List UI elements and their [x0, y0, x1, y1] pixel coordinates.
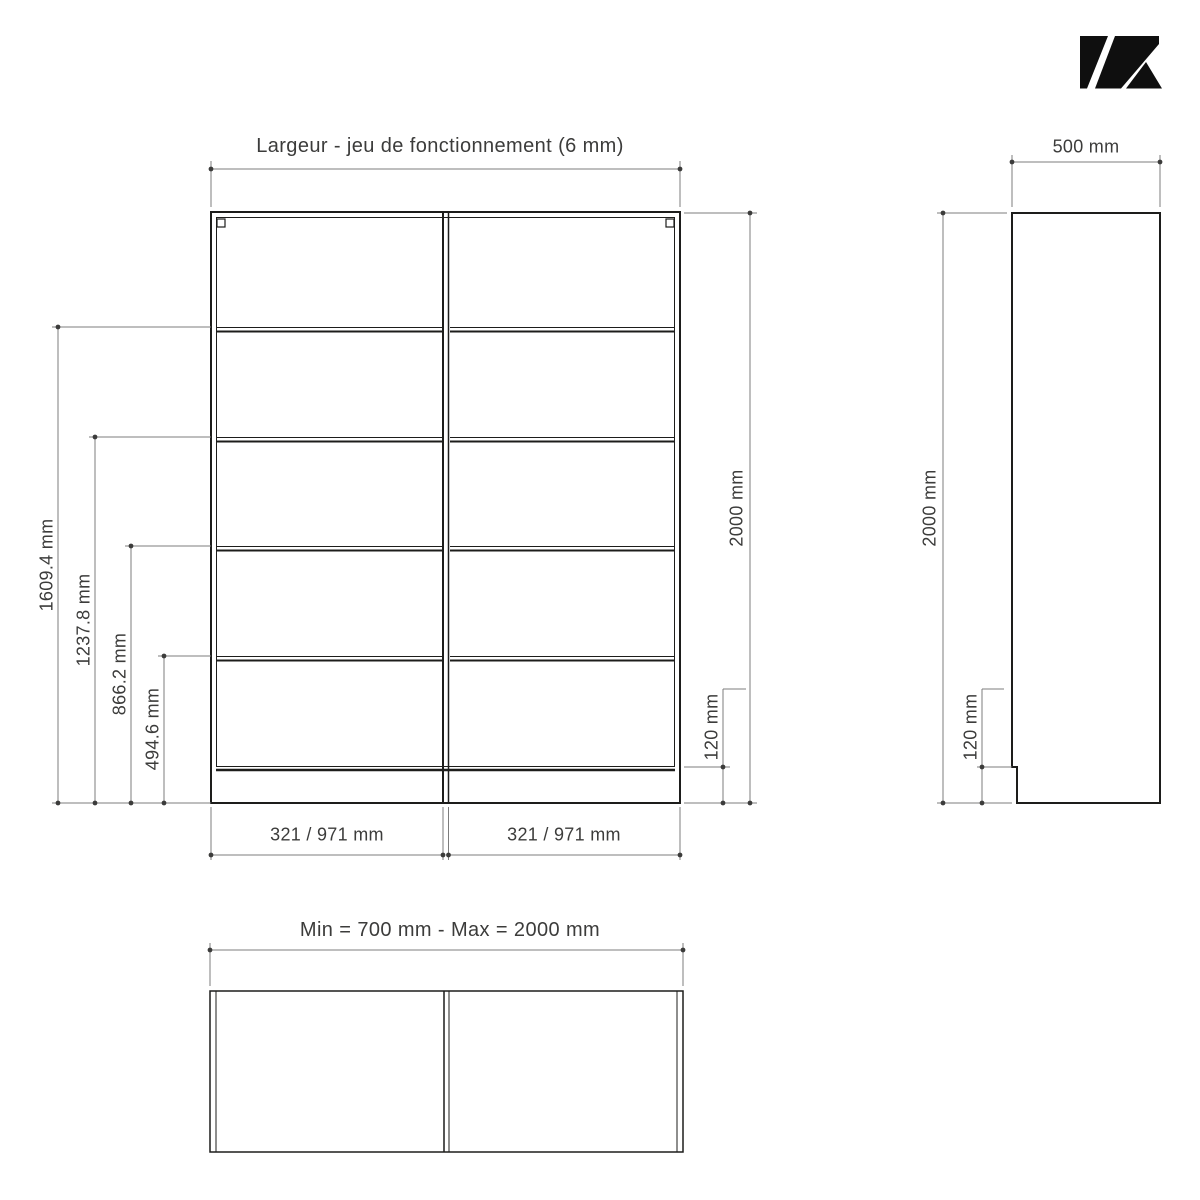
front-door-gap-detail-left [217, 219, 225, 227]
front-plinth [216, 767, 675, 771]
side-view: 500 mm 2000 mm 120 mm [919, 136, 1162, 805]
dim-label-front-plinth: 120 mm [701, 694, 721, 761]
dim-label-shelf-2: 1237.8 mm [73, 574, 93, 667]
front-outer-frame [211, 212, 680, 803]
dim-label-front-total-height: 2000 mm [726, 469, 746, 546]
front-cabinet-outline [211, 212, 680, 803]
technical-drawing-page: Largeur - jeu de fonctionnement (6 mm) 1… [0, 0, 1200, 1200]
dim-label-right-column-width: 321 / 971 mm [507, 824, 621, 844]
front-view: Largeur - jeu de fonctionnement (6 mm) 1… [36, 135, 757, 860]
front-door-gap-detail-right [666, 219, 674, 227]
front-shelves [217, 328, 674, 661]
side-dim-plinth: 120 mm [960, 689, 1012, 805]
front-dim-column-widths: 321 / 971 mm 321 / 971 mm [209, 807, 683, 860]
dim-label-shelf-4: 494.6 mm [142, 688, 162, 770]
top-view: Min = 700 mm - Max = 2000 mm [208, 919, 686, 1152]
top-outline [210, 991, 683, 1152]
side-dim-depth: 500 mm [1010, 136, 1163, 207]
dim-label-side-total-height: 2000 mm [919, 469, 939, 546]
drawing-svg: Largeur - jeu de fonctionnement (6 mm) 1… [0, 0, 1200, 1200]
dim-label-shelf-3: 866.2 mm [109, 633, 129, 715]
top-view-title: Min = 700 mm - Max = 2000 mm [300, 919, 600, 941]
dim-label-side-depth: 500 mm [1053, 136, 1120, 156]
kazed-k-logo-icon [1080, 36, 1162, 89]
top-dim-width-range [208, 943, 686, 986]
dim-label-shelf-1: 1609.4 mm [36, 519, 56, 612]
side-outline [1012, 213, 1160, 803]
front-dim-shelf-heights: 1609.4 mm 1237.8 mm 866.2 mm 494.6 mm [36, 325, 211, 806]
front-dim-width: Largeur - jeu de fonctionnement (6 mm) [209, 135, 683, 207]
dim-label-left-column-width: 321 / 971 mm [270, 824, 384, 844]
dim-label-side-plinth: 120 mm [960, 694, 980, 761]
top-outer-rect [210, 991, 683, 1152]
front-view-title: Largeur - jeu de fonctionnement (6 mm) [256, 135, 624, 157]
front-dim-plinth: 120 mm [684, 689, 746, 805]
